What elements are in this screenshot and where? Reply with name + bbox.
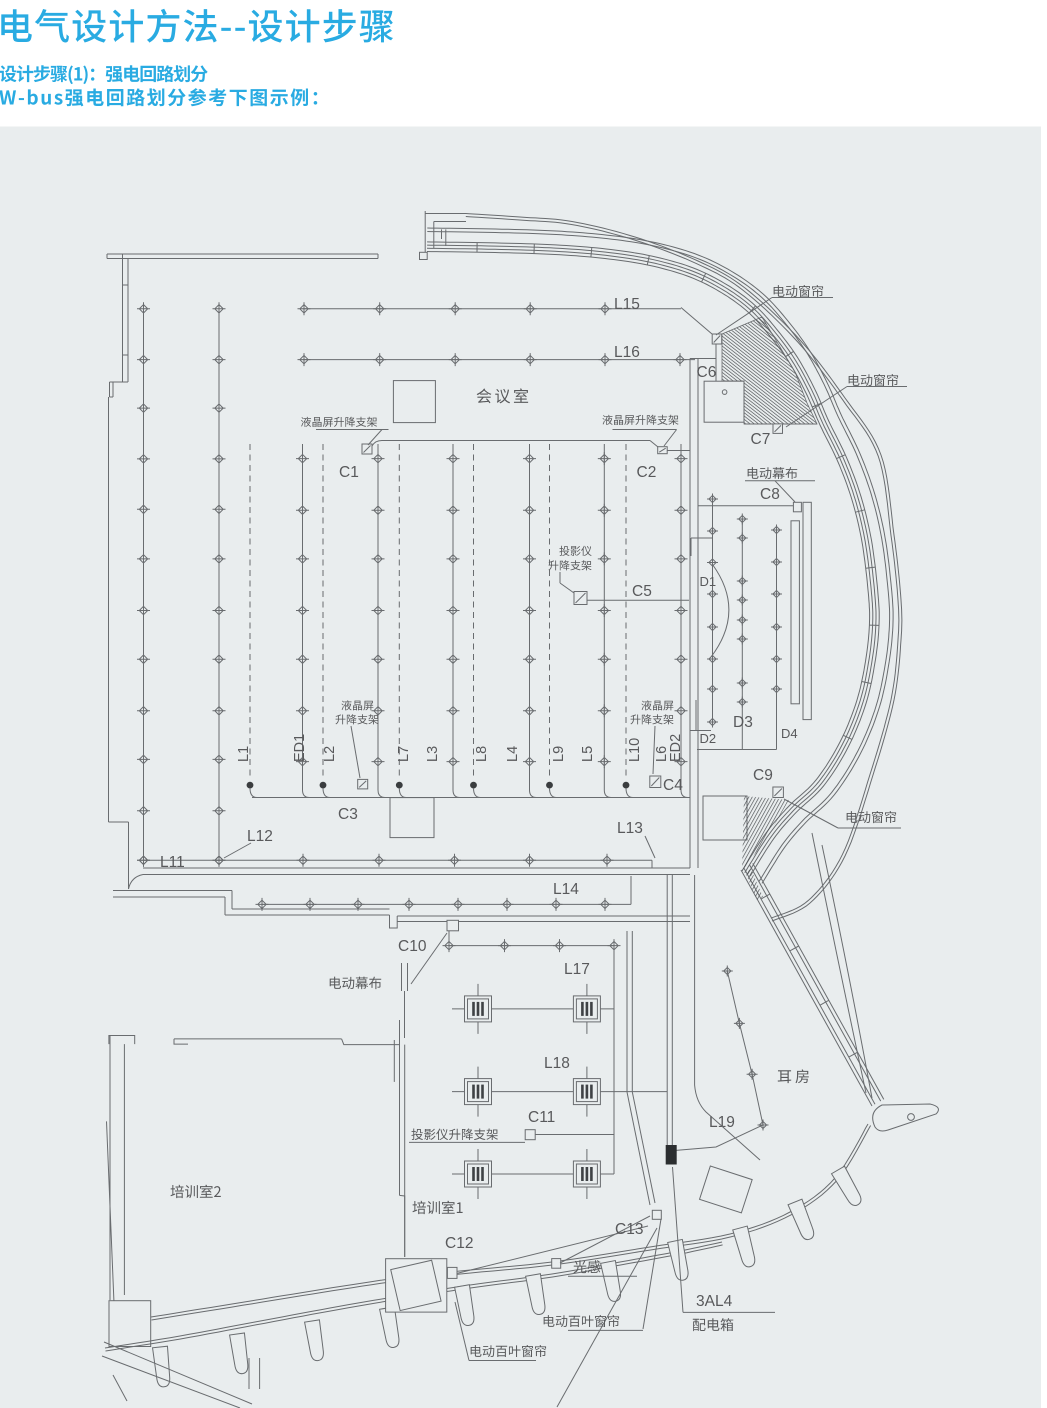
svg-text:L13: L13	[617, 820, 643, 837]
svg-text:L14: L14	[553, 881, 579, 898]
svg-text:C10: C10	[398, 938, 427, 955]
svg-text:L12: L12	[247, 828, 273, 845]
svg-text:L19: L19	[709, 1114, 735, 1131]
svg-text:D4: D4	[781, 726, 798, 741]
svg-text:3AL4: 3AL4	[696, 1293, 733, 1310]
svg-text:L16: L16	[614, 344, 640, 361]
svg-text:L10: L10	[627, 738, 643, 762]
svg-text:C1: C1	[339, 464, 359, 481]
svg-text:C2: C2	[637, 464, 657, 481]
svg-text:C3: C3	[338, 806, 358, 823]
svg-text:D1: D1	[700, 574, 717, 589]
svg-text:C8: C8	[760, 486, 780, 503]
svg-text:C12: C12	[445, 1235, 473, 1252]
svg-text:L2: L2	[322, 746, 338, 762]
svg-text:C11: C11	[528, 1109, 555, 1126]
svg-text:D2: D2	[700, 731, 717, 746]
svg-text:L18: L18	[544, 1055, 570, 1072]
svg-text:L1: L1	[236, 746, 252, 762]
svg-text:L15: L15	[614, 296, 640, 313]
svg-text:C13: C13	[615, 1221, 643, 1238]
svg-text:L11: L11	[160, 854, 185, 871]
svg-text:C6: C6	[697, 364, 717, 381]
svg-text:L3: L3	[425, 746, 441, 762]
svg-text:L5: L5	[580, 746, 596, 762]
svg-text:ED1: ED1	[292, 734, 308, 762]
svg-text:L4: L4	[505, 746, 521, 762]
svg-text:C4: C4	[663, 777, 683, 794]
svg-text:L9: L9	[551, 746, 567, 762]
svg-text:C5: C5	[632, 583, 652, 600]
svg-text:C7: C7	[751, 431, 771, 448]
svg-text:ED2: ED2	[668, 734, 684, 762]
svg-text:L8: L8	[474, 746, 490, 762]
svg-text:L17: L17	[564, 961, 590, 978]
svg-text:D3: D3	[733, 714, 753, 731]
svg-text:L7: L7	[396, 746, 412, 762]
svg-text:C9: C9	[753, 767, 773, 784]
